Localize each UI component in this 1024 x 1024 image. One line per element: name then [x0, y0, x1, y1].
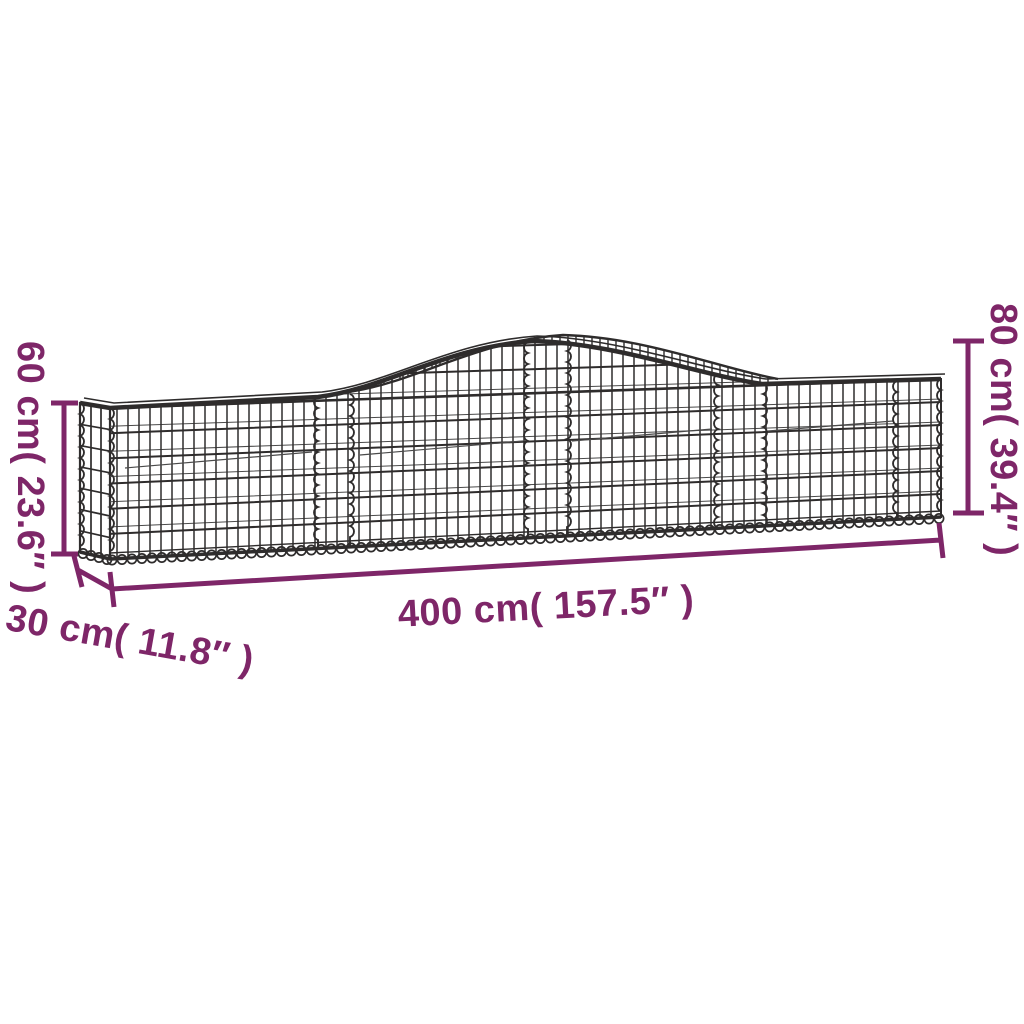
product-dimension-diagram: 60 cm( 23.6″ ) 80 cm( 39.4″ ) 400 cm( 15… [0, 0, 1024, 1024]
dim-line-height-right [953, 341, 984, 513]
dim-label-height-right: 80 cm( 39.4″ ) [981, 303, 1024, 556]
dim-label-height-left: 60 cm( 23.6″ ) [8, 341, 52, 594]
dim-line-depth [74, 556, 112, 589]
dim-line-height-left [51, 403, 78, 554]
end-face-mesh [80, 405, 110, 557]
gabion-basket-illustration [0, 0, 1024, 1024]
